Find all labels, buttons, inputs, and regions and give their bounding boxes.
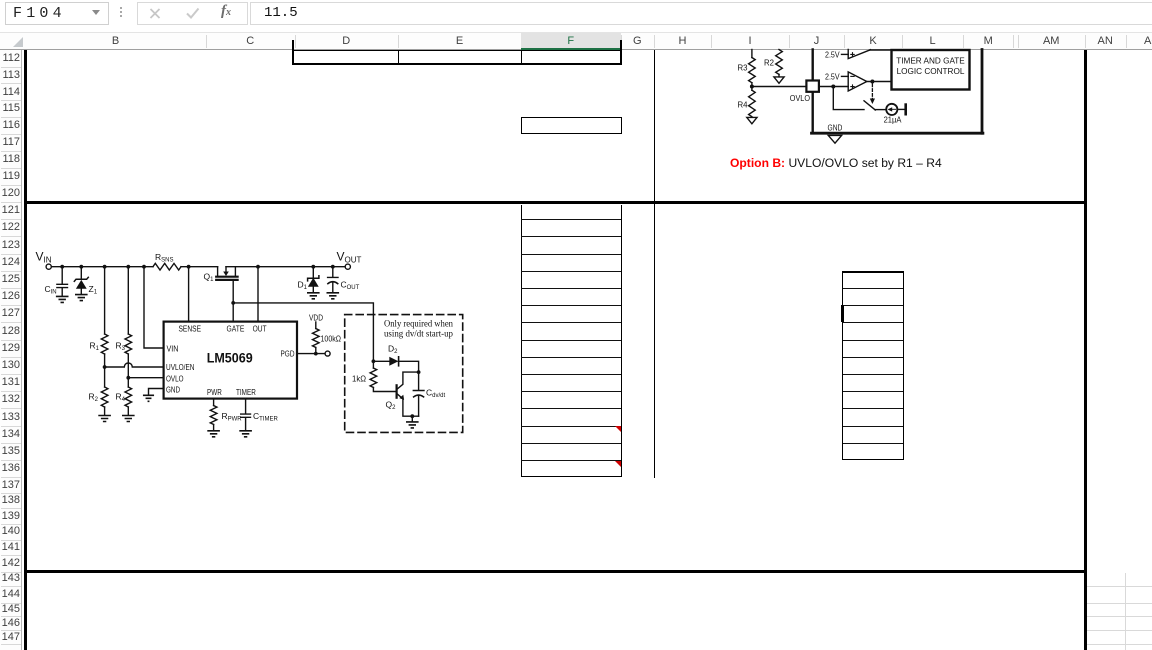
svg-text:Only required when: Only required when [384, 319, 453, 329]
svg-text:CIN: CIN [45, 284, 57, 296]
svg-text:R4: R4 [116, 392, 126, 404]
svg-text:LM5069: LM5069 [207, 350, 253, 365]
svg-text:R2: R2 [764, 58, 774, 68]
svg-text:PGD: PGD [281, 350, 295, 359]
svg-text:OVLO: OVLO [166, 374, 184, 383]
svg-text:VDD: VDD [309, 312, 323, 322]
svg-text:VIN: VIN [36, 250, 52, 265]
svg-text:SENSE: SENSE [179, 324, 202, 333]
svg-text:VIN: VIN [167, 345, 179, 354]
svg-text:2.5V: 2.5V [825, 71, 840, 81]
svg-text:using dv/dt start-up: using dv/dt start-up [384, 330, 453, 340]
svg-text:GND: GND [166, 385, 180, 394]
svg-text:LOGIC CONTROL: LOGIC CONTROL [897, 67, 965, 76]
svg-text:R3: R3 [116, 341, 126, 353]
svg-text:R1: R1 [90, 341, 100, 353]
svg-text:PWR: PWR [207, 388, 222, 397]
svg-text:GATE: GATE [227, 324, 245, 333]
svg-text:R3: R3 [738, 63, 748, 73]
svg-text:OVLO: OVLO [790, 93, 811, 103]
svg-text:OUT: OUT [253, 324, 267, 333]
svg-text:GND: GND [828, 122, 843, 132]
svg-text:100kΩ: 100kΩ [321, 334, 342, 344]
svg-text:RPWR: RPWR [222, 411, 243, 423]
svg-text:D1: D1 [298, 280, 308, 292]
svg-text:21µA: 21µA [884, 114, 902, 124]
svg-text:Z1: Z1 [89, 284, 98, 296]
svg-text:UVLO/EN: UVLO/EN [166, 363, 195, 372]
svg-text:TIMER: TIMER [236, 388, 256, 397]
svg-text:2.5V: 2.5V [825, 50, 840, 60]
svg-text:Q2: Q2 [386, 399, 397, 411]
svg-text:COUT: COUT [341, 280, 360, 292]
svg-text:CTIMER: CTIMER [253, 411, 278, 423]
svg-text:Cdv/dt: Cdv/dt [426, 387, 445, 399]
svg-text:TIMER AND GATE: TIMER AND GATE [896, 56, 965, 65]
svg-text:R2: R2 [89, 392, 99, 404]
svg-text:RSNS: RSNS [155, 252, 173, 264]
svg-text:VOUT: VOUT [337, 250, 362, 265]
svg-text:D2: D2 [388, 343, 398, 355]
svg-text:Q1: Q1 [204, 272, 215, 284]
svg-text:1kΩ: 1kΩ [352, 374, 366, 384]
svg-text:R4: R4 [738, 100, 748, 110]
